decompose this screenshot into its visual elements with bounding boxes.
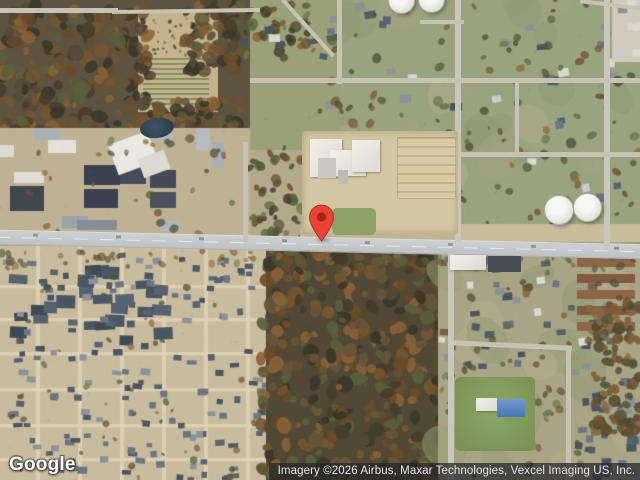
roadside-building-dark xyxy=(488,256,521,272)
attribution-text: Imagery ©2026 Airbus, Maxar Technologies… xyxy=(269,463,640,480)
parking-lot xyxy=(397,137,456,199)
road-horizontal-1 xyxy=(250,78,640,83)
google-logo[interactable]: Google xyxy=(9,454,76,476)
school-building-wing xyxy=(318,158,336,178)
road-horizontal-2 xyxy=(452,152,640,157)
school-tower xyxy=(338,170,348,184)
marker-dot xyxy=(317,212,326,221)
road-vertical-small-2 xyxy=(515,80,519,156)
road-small-north xyxy=(420,20,464,24)
road-vertical-small xyxy=(337,0,342,84)
road-top-west xyxy=(0,8,118,13)
location-marker[interactable] xyxy=(308,204,335,242)
school-building xyxy=(352,140,380,172)
white-roof-building xyxy=(476,398,497,411)
marker-body[interactable] xyxy=(310,205,334,241)
road-vertical-south xyxy=(448,252,454,480)
storage-tank xyxy=(573,193,602,222)
blue-roof-building xyxy=(497,399,525,417)
road-vertical-east xyxy=(604,0,610,250)
road-school-access xyxy=(243,142,248,242)
roadside-building xyxy=(450,255,486,270)
storage-tank xyxy=(544,195,574,225)
sports-field xyxy=(332,208,376,235)
map-viewport[interactable]: Google Imagery ©2026 Airbus, Maxar Techn… xyxy=(0,0,640,480)
road-southeast-vertical xyxy=(566,347,571,480)
